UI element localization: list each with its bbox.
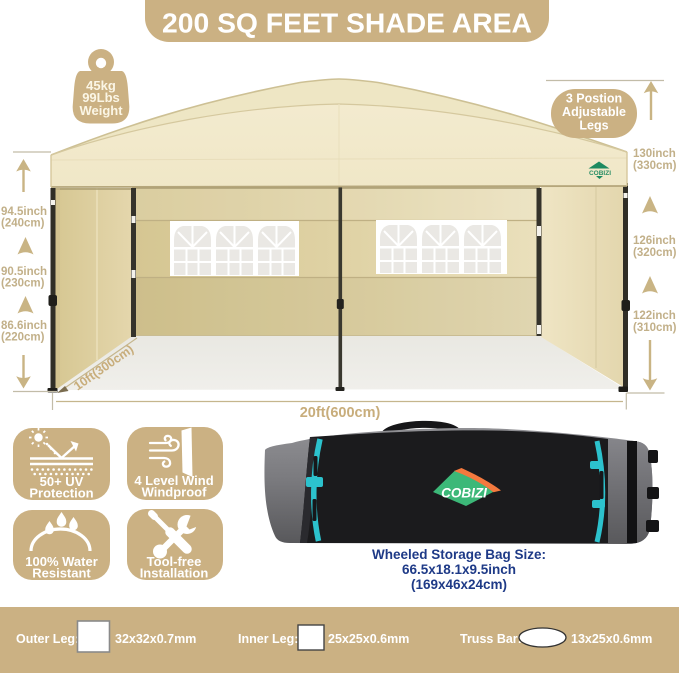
- svg-text:Resistant: Resistant: [32, 566, 91, 581]
- svg-text:Legs: Legs: [579, 119, 608, 133]
- svg-text:Wheeled Storage Bag Size:: Wheeled Storage Bag Size:: [372, 547, 546, 562]
- svg-text:Truss Bar:: Truss Bar:: [460, 632, 522, 646]
- svg-text:25x25x0.6mm: 25x25x0.6mm: [328, 632, 409, 646]
- svg-text:Weight: Weight: [79, 103, 123, 118]
- svg-text:90.5inch: 90.5inch: [1, 266, 47, 278]
- svg-text:Outer Leg:: Outer Leg:: [16, 632, 79, 646]
- svg-text:COBIZI: COBIZI: [441, 486, 487, 501]
- svg-text:20ft(600cm): 20ft(600cm): [300, 405, 381, 421]
- svg-text:(220cm): (220cm): [1, 332, 45, 344]
- svg-text:(330cm): (330cm): [633, 160, 677, 172]
- svg-text:122inch: 122inch: [633, 310, 676, 322]
- svg-text:126inch: 126inch: [633, 235, 676, 247]
- svg-text:(230cm): (230cm): [1, 278, 45, 290]
- svg-text:66.5x18.1x9.5inch: 66.5x18.1x9.5inch: [402, 562, 516, 577]
- svg-text:Adjustable: Adjustable: [562, 105, 626, 119]
- svg-text:Installation: Installation: [140, 566, 209, 581]
- svg-text:(310cm): (310cm): [633, 322, 677, 334]
- svg-text:3 Postion: 3 Postion: [566, 92, 622, 106]
- svg-text:COBIZI: COBIZI: [589, 170, 611, 177]
- svg-text:200 SQ FEET SHADE AREA: 200 SQ FEET SHADE AREA: [162, 8, 532, 39]
- svg-text:Protection: Protection: [29, 486, 93, 501]
- svg-text:(169x46x24cm): (169x46x24cm): [411, 577, 507, 592]
- svg-text:130inch: 130inch: [633, 148, 676, 160]
- svg-text:32x32x0.7mm: 32x32x0.7mm: [115, 632, 196, 646]
- svg-text:(320cm): (320cm): [633, 247, 677, 259]
- svg-text:13x25x0.6mm: 13x25x0.6mm: [571, 632, 652, 646]
- svg-text:Windproof: Windproof: [142, 485, 208, 500]
- svg-text:94.5inch: 94.5inch: [1, 206, 47, 218]
- svg-text:(240cm): (240cm): [1, 218, 45, 230]
- svg-text:86.6inch: 86.6inch: [1, 320, 47, 332]
- svg-text:Inner Leg:: Inner Leg:: [238, 632, 298, 646]
